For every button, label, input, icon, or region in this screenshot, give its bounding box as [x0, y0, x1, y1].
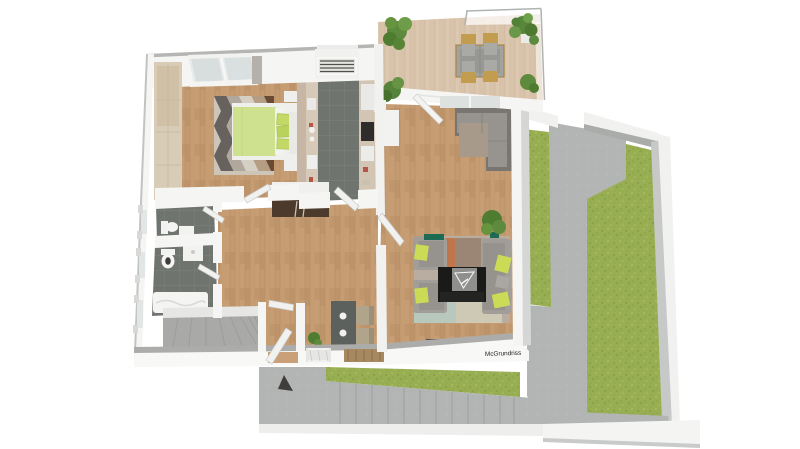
svg-text:McGrundriss: McGrundriss [485, 350, 521, 358]
